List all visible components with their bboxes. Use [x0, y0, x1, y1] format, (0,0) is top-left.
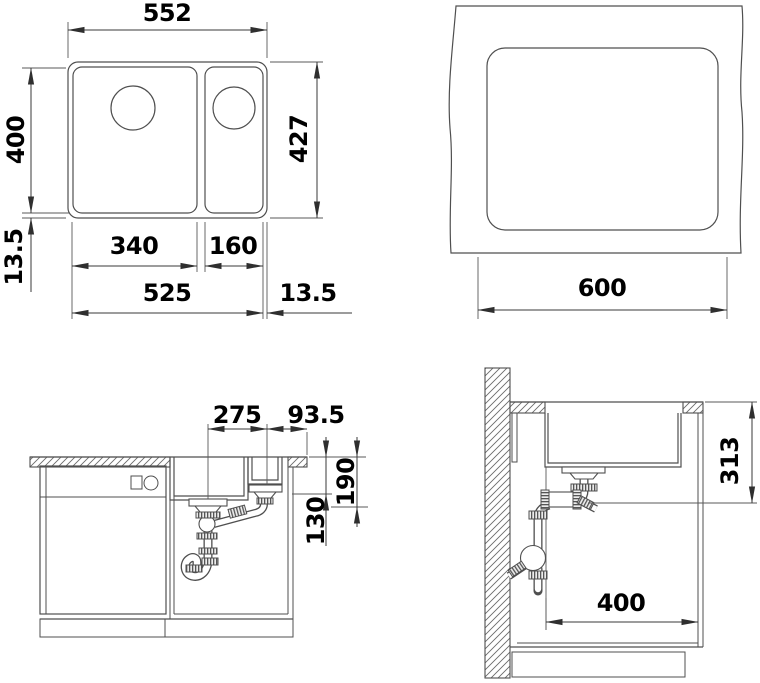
side-drain-hole [213, 87, 255, 129]
dim-install-depth: 313 [718, 437, 742, 486]
dim-main-bowl-depth: 190 [334, 458, 358, 507]
worktop-section-right [288, 457, 307, 467]
dim-min-cabinet-depth: 400 [597, 591, 646, 615]
control-panel-knob [144, 476, 158, 490]
sink-outer-outline [68, 62, 267, 218]
dim-side-bowl-depth: 130 [304, 497, 328, 546]
dim-drain-spacing: 275 [213, 403, 262, 427]
main-bowl-inner [174, 457, 244, 496]
dim-cutout-width: 600 [578, 276, 627, 300]
left-cabinet [40, 466, 166, 614]
front-plumbing [185, 485, 282, 576]
drawing-canvas [0, 0, 760, 683]
main-bowl-outer [170, 457, 248, 500]
worktop-section-front [683, 402, 703, 413]
side-bowl-outline [205, 67, 263, 213]
plinth [40, 619, 293, 637]
dim-overall-width: 552 [143, 1, 192, 25]
bowl-outer-side [545, 413, 681, 467]
control-panel-button [131, 476, 142, 489]
dim-overall-depth: 427 [287, 115, 311, 164]
top-view [22, 22, 352, 319]
dim-bowl-depth: 400 [4, 116, 28, 165]
trap-body [545, 492, 577, 507]
dim-side-bowl-width: 160 [209, 234, 258, 258]
cutout-outline [487, 48, 718, 230]
plinth-side [512, 652, 685, 677]
side-view [485, 368, 757, 678]
dim-rim-offset-left: 13.5 [2, 228, 26, 285]
side-drain-flange [249, 485, 282, 492]
dim-rim-offset-right: 13.5 [279, 281, 336, 305]
technical-drawing: 552 400 427 13.5 340 160 525 13.5 600 27… [0, 0, 760, 683]
cutout-view [449, 6, 743, 319]
drain-flange-side [562, 467, 605, 473]
main-drain-hole [111, 86, 155, 130]
back-panel [512, 413, 517, 462]
main-drain-flange [189, 499, 227, 506]
side-dimension-lines [546, 402, 752, 622]
dim-main-bowl-width: 340 [110, 234, 159, 258]
bowl-inner-side [548, 413, 678, 463]
dim-inner-width: 525 [143, 281, 192, 305]
dim-drain-to-edge: 93.5 [287, 403, 344, 427]
worktop-slab-outline [449, 6, 743, 253]
top-view-dimension-lines [31, 30, 352, 313]
side-bowl-inner [252, 457, 278, 480]
side-plumbing [508, 467, 605, 591]
wall-section [485, 368, 510, 678]
worktop-section-back [510, 402, 545, 413]
main-bowl-outline [73, 67, 197, 213]
